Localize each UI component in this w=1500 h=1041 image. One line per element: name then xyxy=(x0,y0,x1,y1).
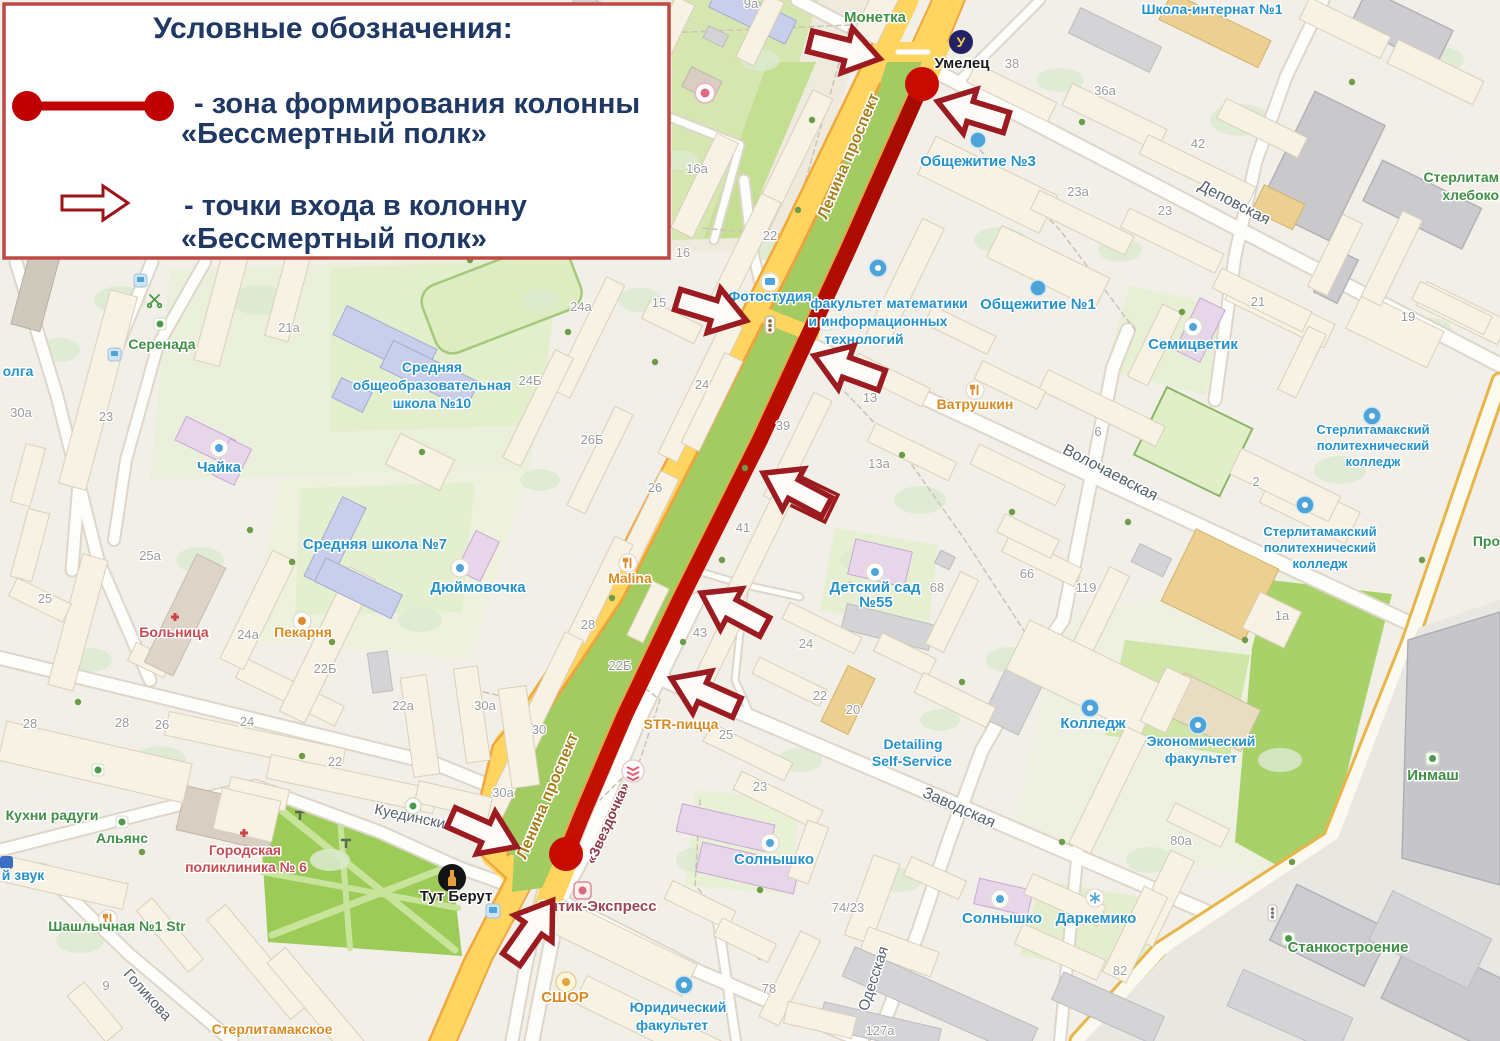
svg-text:30a: 30a xyxy=(474,698,496,713)
svg-text:19: 19 xyxy=(1401,309,1415,324)
svg-text:Шашлычная №1 Str: Шашлычная №1 Str xyxy=(48,918,186,934)
svg-text:42: 42 xyxy=(1191,136,1205,151)
svg-text:39: 39 xyxy=(776,418,790,433)
svg-text:22: 22 xyxy=(763,228,777,243)
svg-text:24: 24 xyxy=(695,377,709,392)
svg-text:Стерлитамакский: Стерлитамакский xyxy=(1263,524,1376,539)
svg-text:Общежитие №3: Общежитие №3 xyxy=(920,153,1036,170)
svg-text:поликлиника № 6: поликлиника № 6 xyxy=(185,859,307,875)
svg-text:факультет: факультет xyxy=(636,1017,708,1033)
svg-text:Тут Берут: Тут Берут xyxy=(420,888,493,905)
svg-text:Про: Про xyxy=(1473,533,1500,549)
svg-text:9: 9 xyxy=(102,978,109,993)
svg-text:Стерлитамакский: Стерлитамакский xyxy=(1316,422,1429,437)
svg-text:Malina: Malina xyxy=(608,570,652,586)
svg-text:Средняя школа №7: Средняя школа №7 xyxy=(303,536,447,553)
svg-text:1a: 1a xyxy=(1275,608,1290,623)
svg-text:Школа-интернат №1: Школа-интернат №1 xyxy=(1141,1,1282,17)
svg-text:STR-пицца: STR-пицца xyxy=(644,716,719,732)
svg-text:24a: 24a xyxy=(237,627,259,642)
svg-text:колледж: колледж xyxy=(1346,454,1402,469)
svg-text:Больница: Больница xyxy=(139,624,209,640)
svg-text:Колледж: Колледж xyxy=(1060,715,1126,732)
svg-text:общеобразовательная: общеобразовательная xyxy=(353,377,511,393)
svg-text:26Б: 26Б xyxy=(581,432,604,447)
svg-text:Кухни радуги: Кухни радуги xyxy=(6,807,99,823)
svg-text:66: 66 xyxy=(1020,566,1034,581)
svg-text:Городская: Городская xyxy=(209,842,281,858)
svg-text:олга: олга xyxy=(3,363,34,379)
svg-text:22a: 22a xyxy=(392,698,414,713)
svg-text:Серенада: Серенада xyxy=(128,336,195,352)
svg-text:43: 43 xyxy=(693,625,707,640)
svg-text:25: 25 xyxy=(38,591,52,606)
svg-text:факультет: факультет xyxy=(1165,750,1237,766)
svg-text:школа №10: школа №10 xyxy=(393,395,472,411)
svg-text:13a: 13a xyxy=(868,456,890,471)
svg-text:25: 25 xyxy=(719,727,733,742)
svg-text:22Б: 22Б xyxy=(314,661,337,676)
svg-text:У: У xyxy=(957,34,966,50)
svg-text:Чайка: Чайка xyxy=(197,459,242,476)
svg-text:Пекарня: Пекарня xyxy=(274,624,332,640)
svg-text:Альянс: Альянс xyxy=(96,830,148,846)
svg-text:36a: 36a xyxy=(1094,83,1116,98)
svg-text:Дюймовочка: Дюймовочка xyxy=(430,579,526,596)
svg-text:й звук: й звук xyxy=(2,867,45,883)
svg-text:82: 82 xyxy=(1113,963,1127,978)
svg-text:политехнический: политехнический xyxy=(1317,438,1430,453)
svg-text:политехнический: политехнический xyxy=(1264,540,1377,555)
svg-text:28: 28 xyxy=(23,716,37,731)
svg-text:- точки входа в колонну: - точки входа в колонну xyxy=(184,190,527,222)
svg-text:Стерлитам: Стерлитам xyxy=(1424,169,1499,185)
svg-text:30a: 30a xyxy=(10,405,32,420)
svg-text:- зона формирования колонны: - зона формирования колонны xyxy=(194,88,640,120)
svg-text:Средняя: Средняя xyxy=(402,359,462,375)
svg-text:№55: №55 xyxy=(859,594,892,611)
svg-text:Ватрушкин: Ватрушкин xyxy=(937,396,1014,412)
svg-text:41: 41 xyxy=(736,520,750,535)
svg-text:13: 13 xyxy=(863,390,877,405)
svg-text:Экономический: Экономический xyxy=(1147,733,1256,749)
svg-text:78: 78 xyxy=(762,981,776,996)
svg-text:20: 20 xyxy=(846,702,860,717)
svg-text:«Бессмертный полк»: «Бессмертный полк» xyxy=(181,223,487,255)
svg-text:Солнышко: Солнышко xyxy=(962,910,1042,927)
svg-text:127a: 127a xyxy=(866,1023,896,1038)
svg-text:80a: 80a xyxy=(1170,833,1192,848)
svg-text:Фотостудия: Фотостудия xyxy=(728,288,811,304)
svg-text:и информационных: и информационных xyxy=(809,313,948,329)
svg-text:22: 22 xyxy=(328,754,342,769)
svg-text:68: 68 xyxy=(930,580,944,595)
svg-text:23a: 23a xyxy=(1067,184,1089,199)
svg-text:24: 24 xyxy=(799,636,813,651)
svg-text:22Б: 22Б xyxy=(609,658,632,673)
svg-text:28: 28 xyxy=(581,617,595,632)
svg-text:технологий: технологий xyxy=(824,331,903,347)
svg-text:24a: 24a xyxy=(570,299,592,314)
svg-text:Солнышко: Солнышко xyxy=(734,851,814,868)
svg-text:23: 23 xyxy=(753,779,767,794)
svg-text:26: 26 xyxy=(648,480,662,495)
svg-text:«Бессмертный полк»: «Бессмертный полк» xyxy=(181,118,487,150)
svg-text:74/23: 74/23 xyxy=(832,900,865,915)
svg-text:28: 28 xyxy=(115,715,129,730)
svg-text:30: 30 xyxy=(532,722,546,737)
svg-text:24: 24 xyxy=(240,714,254,729)
svg-text:Даркемико: Даркемико xyxy=(1056,910,1137,927)
svg-text:Юридический: Юридический xyxy=(630,999,727,1015)
svg-text:Стерлитамакское: Стерлитамакское xyxy=(212,1021,333,1037)
svg-text:26: 26 xyxy=(155,717,169,732)
svg-text:22: 22 xyxy=(813,688,827,703)
svg-text:21: 21 xyxy=(1251,294,1265,309)
svg-text:СШОР: СШОР xyxy=(541,989,589,1006)
svg-text:2: 2 xyxy=(1252,474,1259,489)
svg-text:Self-Service: Self-Service xyxy=(872,753,952,769)
svg-text:16: 16 xyxy=(676,245,690,260)
svg-text:21a: 21a xyxy=(278,320,300,335)
svg-text:6: 6 xyxy=(1094,424,1101,439)
svg-text:Detailing: Detailing xyxy=(883,736,942,752)
svg-text:факультет математики: факультет математики xyxy=(810,295,968,311)
svg-text:16a: 16a xyxy=(686,161,708,176)
svg-text:38: 38 xyxy=(1005,56,1019,71)
svg-text:Станкостроение: Станкостроение xyxy=(1288,939,1409,956)
svg-text:30a: 30a xyxy=(492,785,514,800)
svg-text:Монетка: Монетка xyxy=(844,9,907,26)
svg-text:Умелец: Умелец xyxy=(935,55,991,72)
svg-text:15: 15 xyxy=(652,295,666,310)
svg-text:119: 119 xyxy=(1076,580,1097,595)
svg-text:23: 23 xyxy=(99,409,113,424)
svg-text:9a: 9a xyxy=(744,0,759,11)
svg-text:24Б: 24Б xyxy=(519,373,542,388)
svg-text:Общежитие №1: Общежитие №1 xyxy=(980,296,1096,313)
svg-text:хлебоко: хлебоко xyxy=(1442,187,1499,203)
svg-text:Условные обозначения:: Условные обозначения: xyxy=(153,12,513,45)
svg-text:23: 23 xyxy=(1158,203,1172,218)
svg-text:Семицветик: Семицветик xyxy=(1148,336,1238,353)
svg-text:Инмаш: Инмаш xyxy=(1407,767,1459,784)
svg-text:25a: 25a xyxy=(139,548,161,563)
svg-text:колледж: колледж xyxy=(1293,556,1349,571)
